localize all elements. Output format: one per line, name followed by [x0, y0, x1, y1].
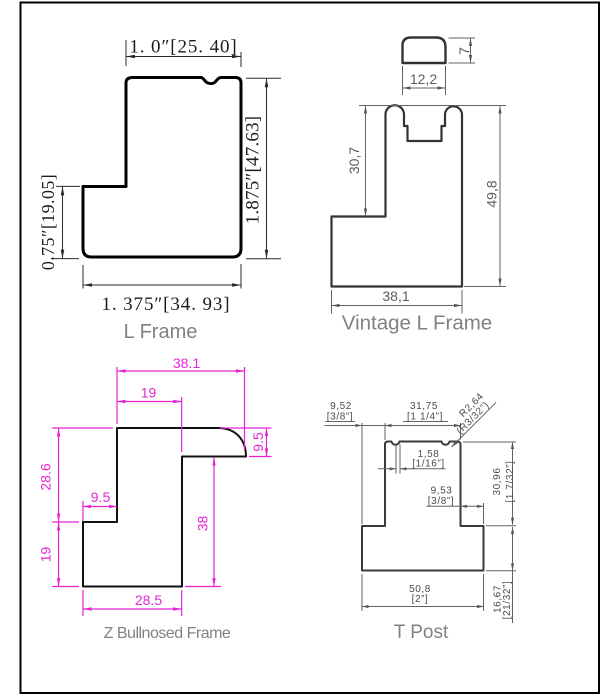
svg-text:[1 7/32”]: [1 7/32”]: [505, 460, 516, 502]
svg-text:9.5: 9.5: [91, 489, 111, 505]
svg-text:1. 375″[34. 93]: 1. 375″[34. 93]: [101, 294, 230, 315]
svg-text:38,1: 38,1: [382, 288, 409, 304]
svg-text:38.1: 38.1: [173, 355, 200, 371]
svg-text:7: 7: [456, 47, 472, 55]
svg-text:38: 38: [195, 516, 211, 532]
svg-text:28.5: 28.5: [135, 592, 162, 608]
svg-text:28.6: 28.6: [38, 463, 54, 490]
svg-text:12,2: 12,2: [410, 71, 437, 87]
svg-text:9.5: 9.5: [250, 432, 266, 452]
svg-text:9,52: 9,52: [330, 401, 352, 412]
svg-text:Z Bullnosed Frame: Z Bullnosed Frame: [104, 625, 231, 642]
svg-text:[2”]: [2”]: [412, 594, 429, 605]
svg-text:[1/16”]: [1/16”]: [412, 459, 445, 470]
svg-text:19: 19: [141, 385, 157, 401]
svg-text:31,75: 31,75: [410, 401, 438, 412]
svg-text:[3/8”]: [3/8”]: [428, 496, 454, 507]
svg-text:[21/32”]: [21/32”]: [502, 581, 513, 620]
svg-text:1.875″[47.63]: 1.875″[47.63]: [243, 116, 264, 225]
svg-text:L Frame: L Frame: [124, 321, 198, 343]
svg-text:1. 0″[25. 40]: 1. 0″[25. 40]: [129, 37, 237, 58]
svg-text:Vintage L Frame: Vintage L Frame: [342, 312, 492, 335]
svg-text:30,7: 30,7: [346, 147, 362, 174]
svg-text:[1 1/4”]: [1 1/4”]: [407, 412, 443, 423]
svg-text:T Post: T Post: [394, 622, 449, 643]
svg-text:30,96: 30,96: [492, 467, 503, 495]
svg-text:[3/8”]: [3/8”]: [327, 412, 353, 423]
svg-text:19: 19: [38, 547, 54, 563]
svg-text:49,8: 49,8: [484, 180, 500, 207]
svg-text:0.75″[19.05]: 0.75″[19.05]: [38, 174, 58, 270]
svg-text:9,53: 9,53: [431, 486, 453, 497]
